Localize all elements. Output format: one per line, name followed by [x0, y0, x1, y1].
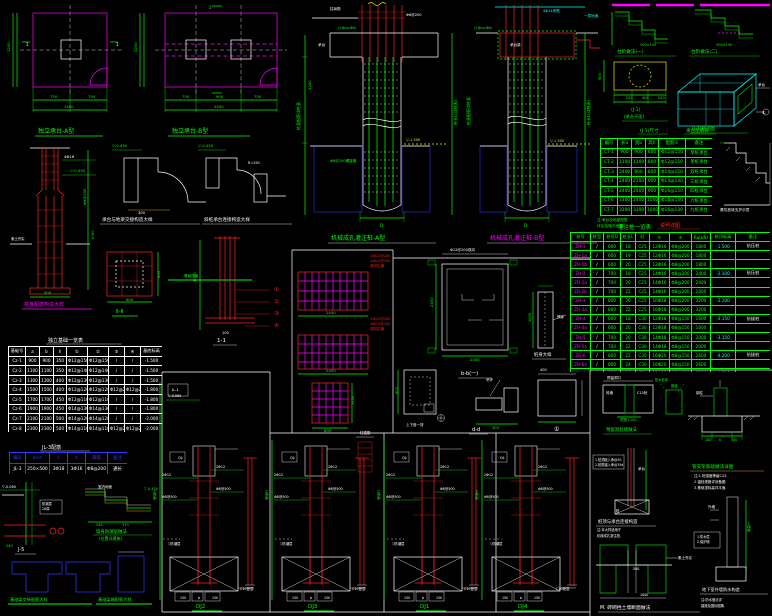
column-header: 桩长L	[621, 233, 636, 242]
cap-plan-title-2: (承台平面)	[624, 113, 644, 120]
annotation-text: 注:防水做法详	[701, 597, 723, 602]
annotation-text: 承台	[638, 466, 646, 471]
annotation-text: 1200	[307, 80, 312, 90]
table-row: JL-3250×5003Φ183Φ16Φ8@200通长	[10, 464, 128, 475]
annotation-text: 桩身配筋详桩表	[465, 97, 471, 125]
basement-wall-waterproof-detail[interactable]: 地下室外墙防水构造	[694, 497, 768, 594]
step2-title: 斜桩承台连接构造大样	[204, 216, 250, 223]
annotation-text: 桩长L(详桩表)	[452, 99, 458, 125]
annotation-text: 400	[642, 96, 649, 100]
annotation-text: 埋深H	[264, 490, 269, 500]
annotation-text: b	[198, 596, 200, 600]
cap-reinforcement-mats[interactable]	[298, 272, 368, 428]
cap-table-title: 承台配筋表	[686, 127, 709, 134]
annotation-text: ③	[274, 311, 279, 317]
pile-shaft-title: 桩身大样	[534, 351, 552, 358]
table-row: ZH-5a/70022C3014Φ18Φ8@1502000	[571, 342, 771, 351]
plan-view-cap-b[interactable]: 独立承台-B型	[140, 5, 287, 136]
annotation-text: QL	[178, 456, 183, 460]
table-row: CT-6330024001000Φ16@140六桩承台	[601, 196, 713, 206]
annotation-text: R=250	[248, 161, 260, 165]
annotation-text: 基坑放坡支护示意	[720, 207, 750, 212]
annotation-text: 2Φ12	[538, 465, 547, 469]
tg2-title: 基础梁端配筋大样	[98, 596, 132, 603]
column-header: ②	[88, 347, 109, 357]
wall-section-dj3[interactable]: DJ3	[272, 437, 374, 611]
column-header: 配筋①	[659, 139, 686, 149]
annotation-text: 1500	[64, 104, 74, 109]
annotation-text: ▽防潮层	[168, 541, 181, 546]
footing-schedule-table: 基础号abh①②③④基底标高Cz-1900900350Φ12@150Φ12@15…	[8, 346, 162, 432]
footing-table-title: 独立基础一览表	[48, 337, 83, 344]
annotation-text: 焊接	[557, 314, 564, 319]
beam-table-heading: JL-3配筋	[40, 444, 90, 451]
annotation-text: Φ8@500	[484, 495, 499, 499]
cage-title: 桩身配筋构造大样	[24, 301, 64, 308]
annotation-text: 埋深H	[376, 490, 381, 500]
wallwp-title: 地下室外墙防水构造	[702, 586, 741, 593]
bb-title: b-b(一)	[461, 371, 478, 377]
table-row: CT-524002400900Φ16@150四桩承台	[601, 186, 713, 196]
annotation-text: ▽-0.450	[198, 143, 214, 148]
annotation-text: 埋深H	[152, 490, 157, 500]
annotation-text: 100	[222, 331, 230, 335]
cap-plan-title-1: (J-1)	[631, 107, 641, 113]
ground-beam-schedule-table: 编号b×h①②箍筋备注JL-3250×5003Φ183Φ16Φ8@200通长	[9, 452, 127, 474]
annotation-text: 注:1.砼强度等级C25.	[694, 473, 728, 478]
annotation-text: 2Φ12	[162, 473, 171, 477]
annotation-text: (1Φa×Φb)	[338, 26, 357, 30]
section-1-title: 1-1	[217, 338, 226, 344]
annotation-text: 嵌缝	[671, 383, 678, 388]
annotation-text: D	[524, 223, 528, 229]
annotation-text: 埋深H	[474, 490, 479, 500]
annotation-text: 1000	[640, 593, 648, 597]
table-row: ZH-1a/60019C2512Φ16Φ8@2001800	[571, 251, 771, 260]
annotation-text: 2Φ12	[484, 473, 493, 477]
annotation-text: 900	[216, 94, 224, 99]
annotation-text: 2.桩筋锚入承台35d.	[595, 462, 624, 467]
annotation-text: 2	[209, 5, 212, 10]
annotation-text: b	[422, 596, 424, 600]
annotation-text: C15砼	[637, 390, 648, 395]
annotation-text: 1.防水层	[697, 534, 710, 539]
column-header: ①	[650, 233, 670, 242]
plan-view-cap-a[interactable]: 独立承台-A型	[13, 5, 122, 136]
annotation-text: 注:承台及地梁配筋	[597, 217, 628, 222]
table-row: CT-7330033001000Φ16@130九桩承台	[601, 206, 713, 216]
footing-table-heading: 独立基础一览表	[46, 337, 122, 344]
annotation-text: 防潮层	[42, 501, 53, 506]
annotation-text: 600	[395, 386, 399, 394]
annotation-text: ②Φ12@150	[370, 259, 391, 263]
annotation-text: ▽-0.450	[112, 143, 128, 148]
isometric-cap-view[interactable]: (J-1)轴测图	[678, 74, 770, 133]
column-header: ③	[109, 347, 125, 357]
annotation-text: 900	[598, 72, 602, 80]
column-header: ①	[67, 347, 88, 357]
cap-schedule-table: 编号长a宽b高h配筋①备注CT-1900900800Φ12@150单桩承台CT-…	[600, 138, 712, 216]
column-header: 桩径D	[604, 233, 621, 242]
pile-b-title: 机械成孔灌注桩-B型	[490, 234, 544, 242]
annotation-text: 2400	[214, 104, 224, 109]
annotation-text: 4Φ14吊筋	[543, 8, 560, 13]
table-row: Cz-1900900350Φ12@150Φ12@150//-1.500	[9, 356, 163, 366]
annotation-text: 素土夯实	[678, 555, 692, 560]
annotation-text: 600	[156, 270, 161, 278]
tg1-title: 基础梁交接配筋大样	[10, 596, 48, 603]
column-header: 高h	[646, 139, 659, 149]
table-row: ZH-2/70018C2514Φ16Φ8@2002400-2.100抗压桩	[571, 269, 771, 278]
annotation-text: ①	[274, 287, 279, 293]
annotation-text: JL-1	[171, 388, 179, 392]
battered-pile-cap-detail[interactable]: 斜桩承台连接构造大样	[198, 150, 292, 224]
column-header: 宽b	[632, 139, 646, 149]
column-header: 基础号	[9, 347, 26, 357]
annotation-text: ▽防潮层	[392, 541, 405, 546]
annotation-text: 100	[705, 438, 711, 442]
annotation-text: 150	[436, 596, 442, 600]
annotation-text: Φ6@200	[406, 13, 422, 17]
annotation-text: Φ8@200螺旋箍	[330, 158, 357, 163]
annotation-text: 1	[26, 42, 29, 47]
annotation-text: 2Φ12	[386, 473, 395, 477]
annotation-text: 钢柱	[696, 390, 704, 395]
annotation-text: 300	[138, 211, 146, 215]
annotation-text: 150	[502, 596, 508, 600]
annotation-text: b	[520, 596, 522, 600]
annotation-text: 建施及国标图集.	[701, 603, 725, 608]
table-row: Cz-313001300400Φ12@130Φ12@130//-1.500	[9, 375, 163, 385]
annotation-text: ▽-1.500	[550, 139, 565, 143]
section-2-2[interactable]: Ⅱ-Ⅱ	[107, 252, 158, 316]
annotation-text: b	[719, 438, 721, 442]
annotation-text: 承台梁	[510, 42, 521, 47]
annotation-text: 250	[626, 96, 633, 100]
annotation-text: 详见结施平面图.	[597, 223, 624, 228]
step-b-title: 台阶做法(二)	[691, 48, 718, 55]
excavation-slope-detail[interactable]	[720, 143, 770, 205]
column-header: 桩型	[591, 233, 604, 242]
annotation-text: ①Φ12@100	[370, 317, 391, 321]
annotation-text: 1.桩顶嵌入承台50.	[595, 457, 622, 462]
table-row: Cz-823002300500Φ14@110Φ14@110Φ12@200Φ12@…	[9, 423, 163, 432]
annotation-text: 2Φ12	[440, 465, 449, 469]
annotation-text: 750	[182, 94, 190, 99]
annotation-text: 20厚	[42, 506, 50, 511]
table-row: Cz-211001100350Φ12@140Φ12@140//-1.500	[9, 366, 163, 376]
annotation-text: 上下各一排	[406, 422, 424, 427]
annotation-text: ▽-0.060	[168, 394, 181, 398]
column-header: 箍筋	[86, 453, 108, 464]
dj2-title: DJ2	[196, 604, 205, 610]
annotation-text: 900	[44, 290, 52, 295]
dj1-title: DJ1	[420, 604, 429, 610]
annotation-text: 250	[658, 96, 665, 100]
column-header: b×h	[26, 453, 50, 464]
cap-dim-title: (J-1)尺寸	[640, 127, 659, 134]
annotation-text: 外墙	[708, 504, 716, 509]
annotation-text: 桩长L(详桩表)	[585, 99, 591, 125]
annotation-text: 防水砂浆	[655, 377, 669, 382]
annotation-text: Φ8@500	[274, 495, 289, 499]
annotation-text: 4Φ16	[64, 154, 75, 159]
table-row: CT-424002100900Φ14@140三桩承台	[601, 177, 713, 187]
section-2-title: Ⅱ-Ⅱ	[116, 309, 124, 315]
mwall-title: M. 砖砌挡土墙断面做法	[600, 604, 651, 611]
column-header: b	[40, 347, 54, 357]
annotation-text: ②	[274, 298, 279, 305]
annotation-text: 承台	[318, 42, 326, 47]
annotation-text: QL	[500, 456, 505, 460]
annotation-text: b	[310, 596, 312, 600]
table-row: ZH-1/60018C2512Φ16Φ8@2001800-1.500抗压桩	[571, 242, 771, 251]
column-header: 砼	[636, 233, 650, 242]
annotation-text: 桩身配筋详桩表	[295, 102, 301, 130]
j5-title: J-5	[17, 547, 24, 553]
annotation-text: 1200	[351, 395, 355, 405]
annotation-text: 150	[324, 596, 330, 600]
dampproof-course-detail[interactable]: 墙身防潮层做法 (位置详建施)	[84, 489, 152, 541]
annotation-text: 洞宽+100	[620, 417, 637, 422]
annotation-text: 基础顶面	[184, 273, 199, 278]
annotation-text: 2400	[326, 368, 336, 373]
table-row: CT-1900900800Φ12@150单桩承台	[601, 148, 713, 158]
table-row: ZH-6a/80024C3016Φ20Φ8@1502600	[571, 360, 771, 369]
annotation-text: 一层地面	[584, 13, 599, 18]
annotation-text: ▽-1.500	[406, 138, 421, 142]
annotation-text: ②Φ12@150	[370, 322, 391, 326]
annotation-text: Φ8@500	[538, 487, 553, 491]
dd-title: d-d	[472, 427, 480, 433]
pilecap-title: 桩顶与承台连接构造	[598, 518, 638, 525]
annotation-text: (1Φa×Φb)	[474, 26, 493, 30]
table-row: CT-32400900800Φ14@150双桩承台	[601, 167, 713, 177]
annotation-text: 墙高H	[746, 522, 751, 532]
annotation-text: 1000	[90, 230, 95, 240]
annotation-text: 150	[404, 596, 410, 600]
column-header: 桩号	[571, 233, 591, 242]
annotation-text: 2.锚栓规格详设备图.	[694, 479, 726, 484]
column-header: 备注	[686, 139, 713, 149]
annotation-text: 双向拉通	[370, 326, 384, 331]
anchor-plate-detail[interactable]	[398, 370, 445, 422]
beam-table-title: JL-3配筋	[41, 444, 61, 451]
annotation-text: Φ12@200双向	[450, 247, 475, 252]
dj4-title: DJ4	[518, 604, 528, 610]
annotation-text: 3.基础顶标高详平面.	[694, 485, 726, 490]
table-row: ZH-4/60018C3012Φ18Φ8@1501600-3.150抗拔桩	[571, 314, 771, 323]
column-header: ②	[68, 453, 86, 464]
column-header: 桩顶标高	[711, 233, 736, 242]
annotation-text: 750	[254, 94, 262, 99]
annotation-text: 2.保护墙	[697, 539, 710, 544]
annotation-text: Φ8@200	[82, 188, 87, 205]
annotation-text: 砖墙	[606, 390, 614, 395]
column-header: h	[54, 347, 67, 357]
annotation-text: 室内地面	[98, 484, 112, 489]
column-header: 备注	[108, 453, 128, 464]
table-row: ZH-2b/70022C2514Φ16Φ8@2002400	[571, 287, 771, 296]
annotation-text: 240	[6, 544, 13, 548]
table-row: ZH-3a/80022C2516Φ18Φ8@2003200	[571, 305, 771, 314]
annotation-text: ④	[274, 323, 279, 329]
annotation-text: ▽防潮层	[490, 541, 503, 546]
red-note-title: 说明详图	[660, 222, 680, 229]
annotation-text: ①	[554, 426, 559, 433]
stair-step-details[interactable]: 台阶做法(一) 台阶做法(二)	[612, 5, 770, 56]
table-row: ZH-2a/70020C2514Φ16Φ8@2002400	[571, 278, 771, 287]
annotation-text: 2Φ12	[274, 473, 283, 477]
table-row: ZH-3/80020C2516Φ18Φ8@2003200-2.100	[571, 296, 771, 305]
annotation-text: 600	[126, 297, 134, 302]
plan-a-title: 独立承台-A型	[38, 127, 74, 135]
pile-a-title: 机械成孔灌注桩-A型	[331, 234, 385, 242]
annotation-text: 吊环	[486, 378, 494, 382]
annotation-text: 预留洞口	[607, 375, 621, 380]
annotation-text: 300×150	[640, 43, 656, 47]
annotation-text: 500	[633, 567, 639, 571]
annotation-text: Φ8@500	[440, 487, 455, 491]
bored-pile-type-b[interactable]: 机械成孔灌注桩-B型	[476, 5, 600, 243]
annotation-text: Φ8@500	[328, 487, 343, 491]
annotation-text: 750	[88, 94, 96, 99]
step-a-title: 台阶做法(一)	[617, 48, 644, 55]
opening-seal-detail[interactable]: 预留洞封堵做法	[603, 381, 653, 434]
annotation-text: QL	[290, 456, 295, 460]
bored-pile-type-a[interactable]: 机械成孔灌注桩-A型	[302, 3, 452, 244]
cap-beam-joint-detail[interactable]: 承台与地梁交接构造大样	[100, 150, 206, 224]
annotation-text: C10垫层	[240, 586, 254, 591]
table-row: ZH-6/80022C3016Φ20Φ8@1502600-4.200抗拔桩	[571, 351, 771, 360]
annotation-text: ①Φ12@100	[370, 254, 391, 258]
table-row: Cz-415001500400Φ12@120Φ12@120Φ12@200Φ12@…	[9, 385, 163, 395]
annotation-text: ①	[762, 110, 766, 115]
annotation-text: C10垫层	[556, 586, 570, 591]
annotation-text: ▽防潮层	[280, 541, 293, 546]
column-header: 编号	[601, 139, 618, 149]
plan-b-title: 独立承台-B型	[172, 127, 208, 135]
ground-beam-joint-details[interactable]: 基础梁交接配筋大样 基础梁端配筋大样	[8, 552, 152, 604]
annotation-text: 150	[292, 596, 298, 600]
annotation-text: Φ8@500	[162, 495, 177, 499]
wall-section-dj4[interactable]: DJ4	[482, 440, 579, 611]
table-row: Cz-517001700450Φ12@110Φ12@110//-1.800	[9, 394, 163, 404]
annotation-text: 370	[122, 523, 129, 527]
annotation-text: 750	[50, 94, 58, 99]
step1-title: 承台与地梁交接构造大样	[102, 216, 153, 223]
table-row: Cz-721002100500Φ14@120Φ14@120//-2.000	[9, 414, 163, 424]
annotation-text: Φ8@500	[216, 487, 231, 491]
column-header: 基底标高	[141, 347, 163, 357]
annotation-text: QL	[402, 456, 407, 460]
column-header: Ra(kN)	[692, 233, 711, 242]
annotation-text: Φ8@500	[386, 495, 401, 499]
annotation-text: 1000	[528, 312, 532, 322]
column-header: ④	[125, 347, 141, 357]
table-row: ZH-5/70020C3014Φ18Φ8@1502000-3.150	[571, 333, 771, 342]
annotation-text: ▽-0.060	[2, 485, 16, 489]
column-header: 编号	[10, 453, 26, 464]
dpc-title-1: 墙身防潮层做法	[96, 528, 127, 535]
cad-drawing-sheet[interactable]: 独立承台-A型 独立承台-B型 桩身配筋构造大样 承台与地梁交接构造大样 斜桩承…	[0, 0, 772, 616]
annotation-text: 800	[324, 428, 332, 433]
annotation-text: 1200	[6, 42, 11, 52]
annotation-text: C10垫层	[464, 586, 478, 591]
column-header: 长a	[618, 139, 632, 149]
pile-shaft-detail[interactable]: 桩身大样	[532, 286, 566, 359]
table-row: ZH-4a/60020C3012Φ18Φ8@1501600	[571, 323, 771, 332]
cap-plan-j1[interactable]: (J-1) (承台平面)	[604, 60, 668, 121]
table-row: CT-211001100800Φ12@150单桩承台	[601, 158, 713, 168]
wall-section-dj1[interactable]: DJ1	[384, 440, 481, 611]
annotation-text: 2400	[326, 310, 336, 315]
annotation-text: 1	[116, 42, 119, 47]
annotation-text: 机械成孔灌注桩.	[597, 533, 621, 538]
table-row: ZH-7/90024C3018Φ20Φ8@1503200-4.500	[571, 369, 771, 372]
section-1-1[interactable]: 1-1	[168, 236, 270, 345]
waterproof-block-detail[interactable]	[660, 384, 684, 414]
hole-title: 预留洞封堵做法	[606, 426, 637, 433]
pile-schedule-table: 桩号桩型桩径D桩长L砼①②Ra(kN)桩顶标高备注ZH-1/60018C2512…	[570, 232, 770, 372]
annotation-text: 300	[492, 426, 500, 430]
annotation-text: 柱纵筋	[330, 6, 341, 11]
annotation-text: D	[380, 223, 384, 229]
annotation-text: 素土夯实	[11, 236, 25, 241]
annotation-text: 2400	[429, 297, 434, 307]
annotation-text: 桩	[616, 508, 620, 513]
dj3-title: DJ3	[308, 604, 318, 610]
column-header: 备注	[736, 233, 771, 242]
annotation-text: 100	[731, 438, 737, 442]
detail-circle-1[interactable]	[538, 374, 582, 422]
column-header: ②	[670, 233, 692, 242]
column-header: ①	[50, 453, 68, 464]
annotation-text: 1200	[133, 42, 138, 52]
annotation-text: 150	[534, 596, 540, 600]
dpc-title-2: (位置详建施)	[99, 535, 123, 541]
annotation-text: 2Φ12	[216, 465, 225, 469]
table-row: ZH-1b/60020C2512Φ16Φ8@2001800	[571, 260, 771, 269]
annotation-text: 2400	[470, 357, 480, 362]
support-title: 管支架基础做法详图	[692, 463, 734, 470]
annotation-text: 承台	[758, 82, 766, 87]
annotation-text: 240	[96, 523, 103, 527]
annotation-text: 150	[212, 596, 218, 600]
annotation-text: 400	[540, 368, 547, 372]
annotation-text: 300×150	[716, 43, 732, 47]
table-row: Cz-619001900450Φ14@130Φ14@130//-1.800	[9, 404, 163, 414]
column-header: a	[26, 347, 40, 357]
annotation-text: 双向拉通	[370, 263, 384, 268]
annotation-text: C10垫层	[352, 586, 366, 591]
annotation-text: 2Φ12	[328, 465, 337, 469]
annotation-text: 注:本大样适用于	[597, 527, 622, 532]
annotation-text: 150	[180, 596, 186, 600]
annotation-text: 柱插筋	[360, 430, 371, 435]
annotation-text: ▽-0.050	[70, 168, 86, 173]
